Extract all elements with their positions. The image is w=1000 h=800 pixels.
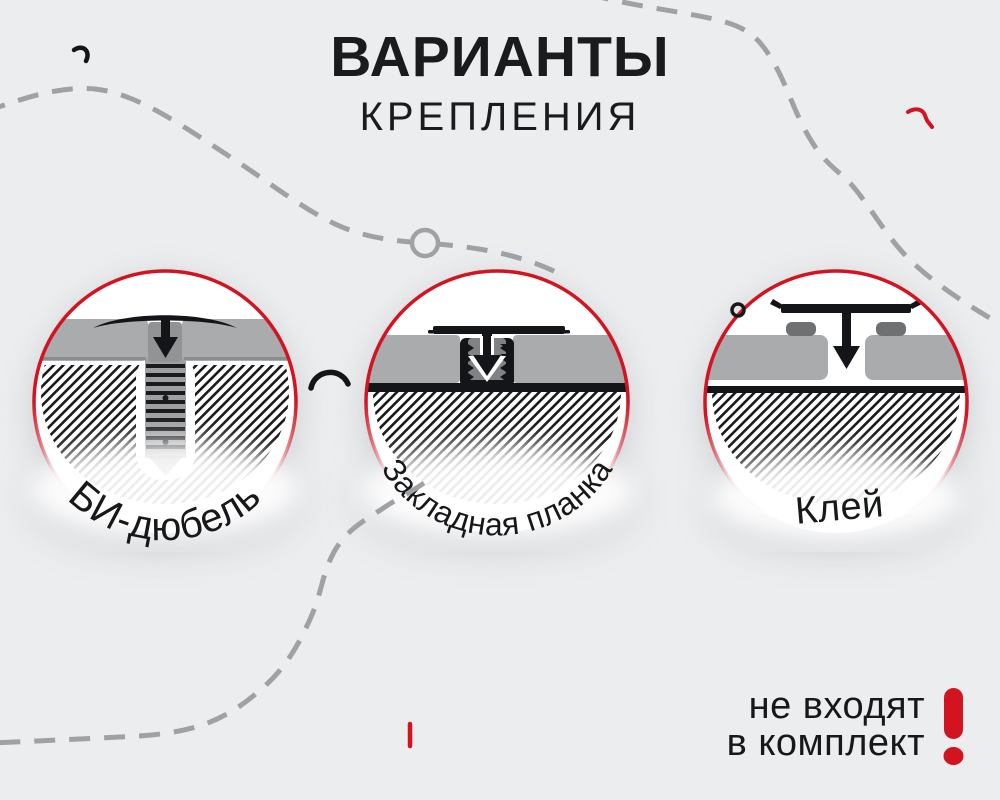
title-line-2: КРЕПЛЕНИЯ <box>0 95 1000 139</box>
option-card-bi-dowel: БИ-дюбель <box>15 252 315 552</box>
title-line-1: ВАРИАНТЫ <box>0 26 1000 90</box>
subfloor-line <box>698 386 974 393</box>
page-root: { "title": { "line1": "ВАРИАНТЫ", "line2… <box>0 0 1000 800</box>
exclamation-icon <box>940 686 967 770</box>
embedded-plank-diagram: Закладная планка <box>347 252 647 552</box>
note-line-1: не входят <box>727 688 925 725</box>
arc-decoration <box>311 372 348 388</box>
bi-dowel-diagram: БИ-дюбель <box>15 252 315 552</box>
profile-cap-wings <box>428 330 570 334</box>
note-text: не входят в комплект <box>727 686 925 762</box>
option-card-glue: Клей <box>686 252 986 552</box>
glue-diagram: Клей <box>686 252 986 552</box>
title-block: ВАРИАНТЫ КРЕПЛЕНИЯ <box>0 26 1000 139</box>
option-card-embedded-plank: Закладная планка <box>347 252 647 552</box>
note-block: не входят в комплект <box>727 686 967 770</box>
note-line-2: в комплект <box>727 725 925 762</box>
option-label: Клей <box>793 483 885 533</box>
